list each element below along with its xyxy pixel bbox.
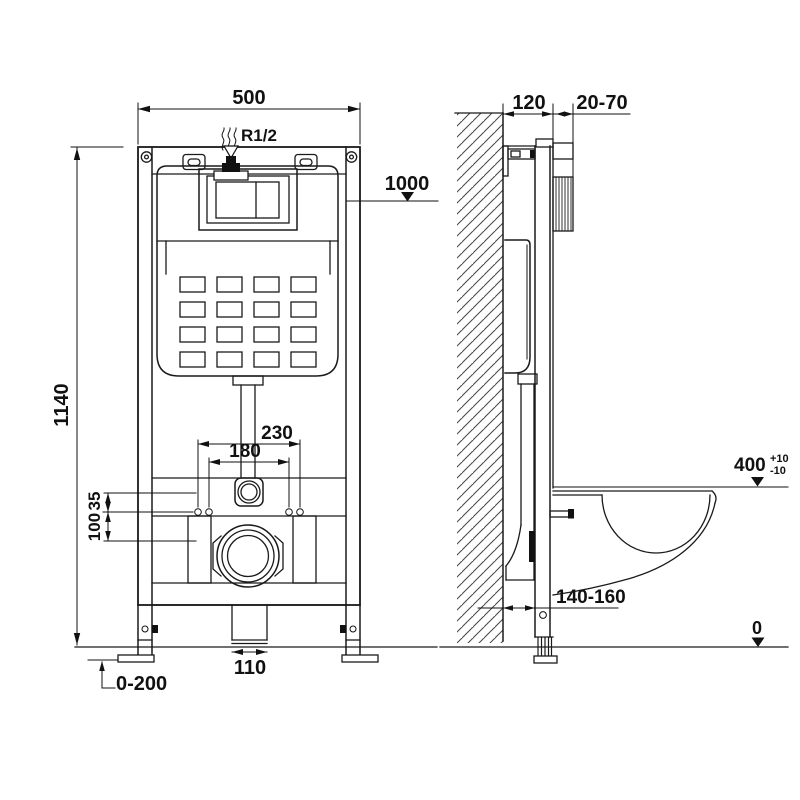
dim-230: 230 — [198, 423, 300, 507]
cistern-outline — [157, 166, 338, 376]
svg-text:0-200: 0-200 — [116, 673, 167, 695]
left-leg — [118, 605, 158, 662]
svg-text:140-160: 140-160 — [556, 587, 626, 608]
flush-pipe — [233, 376, 263, 478]
inlet-label: R1/2 — [241, 126, 277, 145]
svg-text:+10: +10 — [770, 453, 789, 465]
level-marker-triangle — [751, 477, 764, 487]
svg-text:35: 35 — [85, 492, 104, 511]
cistern-side — [505, 240, 530, 373]
corner-screw-icon — [141, 152, 356, 162]
dim-floor-level: 0 — [752, 618, 765, 647]
side-view — [440, 113, 788, 663]
cistern-grid — [180, 277, 316, 367]
svg-text:0: 0 — [752, 618, 762, 638]
outlet-pipe-bottom — [232, 605, 267, 644]
side-foot — [534, 637, 557, 663]
technical-drawing-page: R1/2 500 1140 1000 — [0, 0, 800, 800]
svg-text:500: 500 — [232, 87, 265, 109]
cistern-mid-rib — [157, 241, 338, 274]
dim-leg-adjust: 0-200 — [88, 660, 167, 695]
support-bars — [188, 516, 316, 583]
waste-outlet — [213, 525, 283, 587]
svg-text:230: 230 — [261, 423, 293, 444]
toilet-bowl — [553, 487, 788, 595]
top-slot-plates — [183, 155, 317, 170]
wall-bracket — [503, 146, 535, 176]
flush-bend — [506, 374, 537, 580]
svg-text:20-70: 20-70 — [576, 92, 627, 114]
svg-text:110: 110 — [234, 657, 266, 679]
fixing-bolt-holes — [195, 509, 304, 516]
dim-110: 110 — [232, 649, 267, 679]
installation-diagram: R1/2 500 1140 1000 — [0, 0, 800, 800]
rail-hole — [540, 612, 547, 619]
dim-height-1140: 1140 — [51, 147, 123, 645]
svg-text:400: 400 — [734, 455, 766, 476]
svg-text:100: 100 — [85, 513, 104, 541]
front-view: R1/2 — [75, 126, 437, 662]
svg-text:-10: -10 — [770, 465, 786, 477]
svg-text:1140: 1140 — [51, 383, 73, 426]
right-leg — [340, 605, 378, 662]
svg-text:1000: 1000 — [385, 173, 430, 195]
wall-section — [455, 113, 503, 643]
level-marker-triangle — [752, 638, 765, 648]
fixing-rod — [550, 509, 574, 519]
mounting-crossbar — [152, 478, 346, 516]
svg-text:180: 180 — [229, 441, 261, 462]
dim-bowl-height-400: 400 +10 -10 — [734, 453, 789, 487]
svg-text:120: 120 — [512, 92, 545, 114]
flush-plate-side — [553, 177, 573, 231]
frame-rail-side — [535, 139, 573, 637]
dim-wall-finish: 20-70 — [556, 92, 628, 117]
dim-180: 180 — [209, 441, 289, 507]
